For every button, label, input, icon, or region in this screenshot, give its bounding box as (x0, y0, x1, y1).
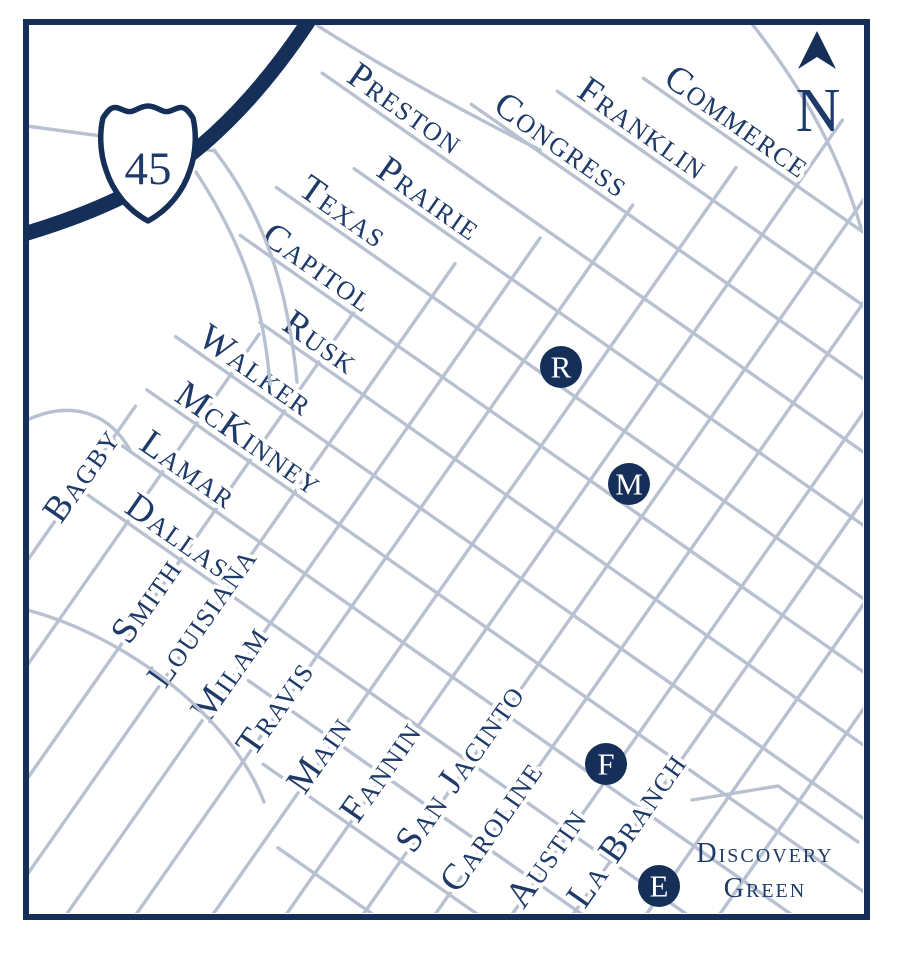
downtown-street-map: CommerceFranklinCongressPrestonPrairieTe… (0, 0, 900, 963)
marker-F[interactable]: F (585, 743, 627, 785)
marker-R-letter: R (551, 350, 572, 385)
marker-E[interactable]: E (638, 865, 680, 907)
marker-F-letter: F (597, 747, 614, 782)
compass-letter: N (796, 77, 841, 145)
marker-M[interactable]: M (608, 463, 650, 505)
marker-M-letter: M (615, 467, 643, 502)
discovery-green-line1: Discovery (696, 838, 833, 869)
marker-E-letter: E (650, 869, 669, 904)
discovery-green-line2: Green (724, 873, 806, 904)
marker-R[interactable]: R (540, 346, 582, 388)
map-canvas: CommerceFranklinCongressPrestonPrairieTe… (0, 0, 900, 963)
highway-shield-number: 45 (125, 143, 172, 195)
